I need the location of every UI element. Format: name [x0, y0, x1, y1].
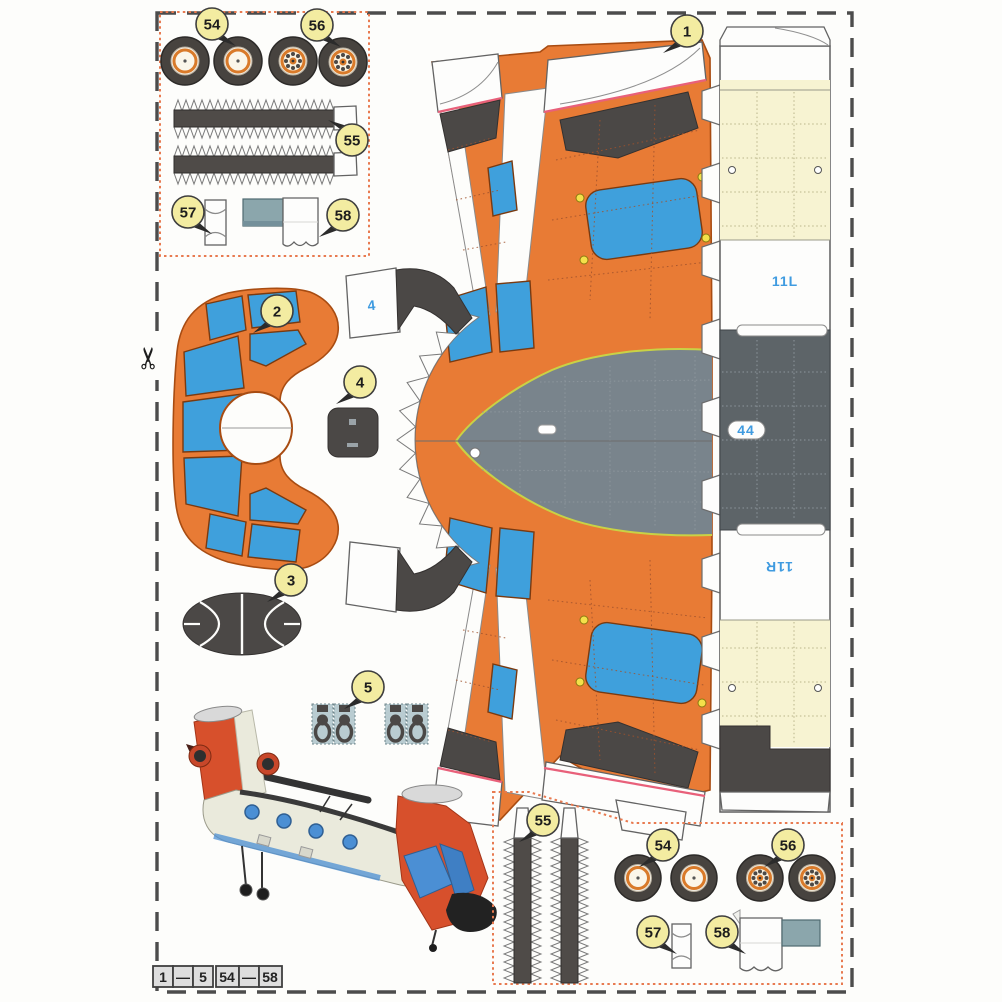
part-label-58-a: 58	[319, 199, 359, 237]
svg-text:1: 1	[683, 24, 691, 41]
svg-text:5: 5	[364, 680, 372, 697]
nose-arc-strip-upper: 4	[346, 268, 472, 338]
svg-text:✂: ✂	[133, 345, 166, 370]
legend-cell: —	[242, 969, 256, 985]
svg-text:56: 56	[780, 838, 797, 855]
panel-code-11R: 11R	[765, 559, 793, 575]
legend-cell: 54	[219, 969, 235, 985]
svg-text:55: 55	[535, 813, 552, 830]
nose-arc-strip-lower	[346, 542, 472, 612]
svg-text:55: 55	[344, 133, 361, 150]
side-fold-strip: 11L 44 11R	[702, 27, 830, 812]
svg-text:56: 56	[309, 18, 326, 35]
hook-pieces	[312, 704, 428, 744]
svg-text:4: 4	[356, 375, 365, 392]
papercraft-sheet: 4 11L	[0, 0, 1002, 1002]
toothed-strip-icon	[174, 100, 357, 184]
part57-piece-2	[672, 924, 691, 968]
part57-piece	[205, 200, 226, 245]
svg-text:54: 54	[655, 838, 672, 855]
svg-text:2: 2	[273, 304, 281, 321]
part-label-4: 4	[336, 366, 376, 404]
svg-text:57: 57	[645, 925, 662, 942]
rotor-base-piece	[183, 593, 301, 655]
part58-piece-2	[733, 910, 820, 971]
glue-tab-code: 4	[367, 297, 377, 314]
wheel-spoked-icon	[269, 37, 367, 86]
fold-tabs	[702, 85, 720, 749]
svg-text:58: 58	[335, 208, 352, 225]
panel-code-11L: 11L	[772, 273, 798, 289]
canopy-piece	[173, 288, 338, 569]
parts-range-legend: 1 — 5 54 — 58	[153, 966, 282, 987]
svg-text:54: 54	[204, 17, 221, 34]
legend-cell: —	[176, 969, 190, 985]
dark-pad-piece	[328, 408, 378, 457]
wheel-plain-icon-2	[615, 855, 717, 901]
part-label-57-b: 57	[637, 916, 677, 954]
wheel-plain-icon	[161, 37, 262, 85]
sheet-artwork: 4 11L	[0, 0, 1002, 1002]
wheel-spoked-icon-2	[737, 855, 835, 901]
scissors-icon: ✂	[133, 336, 166, 380]
svg-text:57: 57	[180, 205, 197, 222]
panel-code-44: 44	[737, 422, 755, 438]
svg-text:58: 58	[714, 925, 731, 942]
part-label-5: 5	[344, 671, 384, 709]
legend-cell: 1	[159, 969, 167, 985]
legend-cell: 58	[262, 969, 278, 985]
part58-piece	[243, 198, 318, 246]
svg-text:3: 3	[287, 573, 295, 590]
legend-cell: 5	[199, 969, 207, 985]
